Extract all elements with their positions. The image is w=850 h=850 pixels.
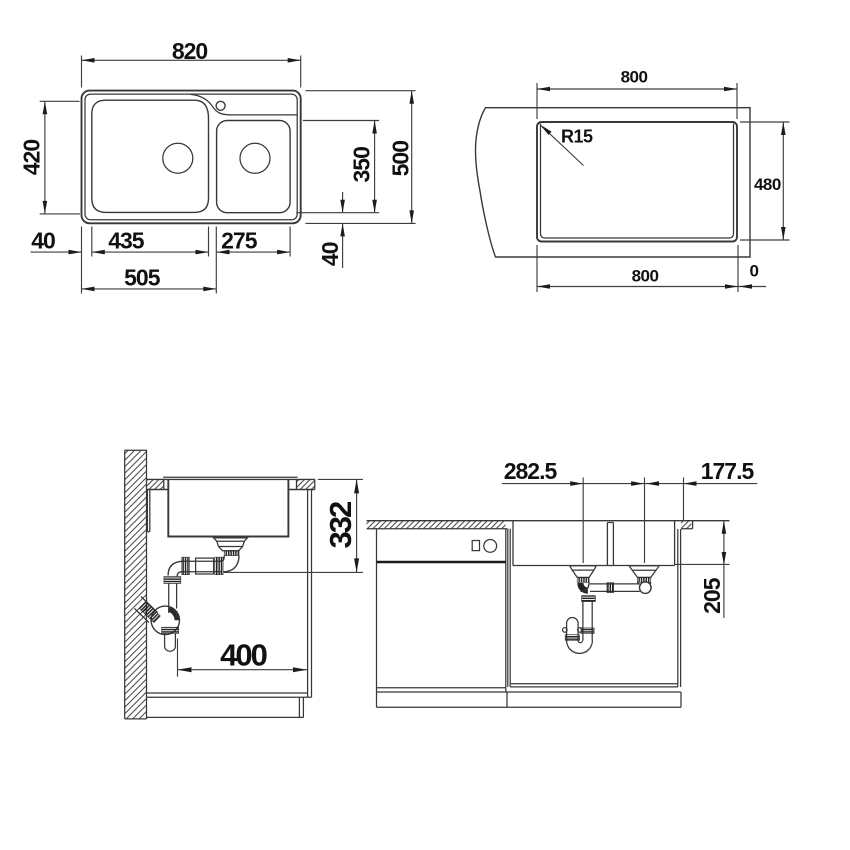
- svg-text:505: 505: [124, 264, 161, 290]
- svg-text:800: 800: [621, 67, 648, 86]
- svg-text:800: 800: [632, 267, 659, 286]
- svg-text:0: 0: [750, 262, 759, 281]
- svg-text:R15: R15: [561, 127, 593, 147]
- svg-text:400: 400: [220, 637, 266, 672]
- svg-text:820: 820: [172, 38, 208, 64]
- svg-text:500: 500: [388, 141, 414, 177]
- svg-text:275: 275: [221, 228, 258, 254]
- svg-text:205: 205: [699, 577, 725, 614]
- svg-text:435: 435: [108, 228, 145, 254]
- svg-text:420: 420: [19, 140, 45, 176]
- svg-text:40: 40: [317, 242, 343, 266]
- svg-text:282.5: 282.5: [504, 458, 558, 484]
- svg-text:177.5: 177.5: [701, 458, 755, 484]
- svg-text:332: 332: [323, 502, 358, 548]
- svg-text:350: 350: [349, 147, 375, 183]
- svg-text:480: 480: [754, 175, 781, 194]
- svg-text:40: 40: [31, 228, 55, 254]
